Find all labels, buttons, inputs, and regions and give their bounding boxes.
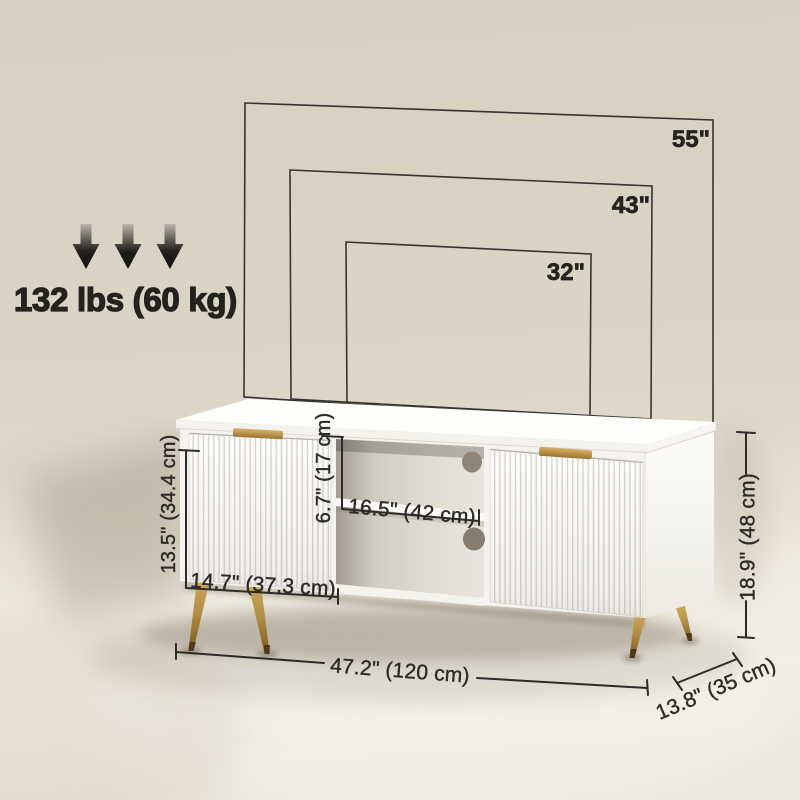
right-door [490,447,643,617]
floor-shadow-core [140,607,690,661]
weight-capacity-label: 132 lbs (60 kg) [14,281,237,318]
dim-label-compartment-height: 6.7" (17 cm) [313,413,335,524]
dim-tick [647,680,648,695]
dim-label-cabinet-height: 13.5" (34.4 cm) [158,434,180,573]
dim-tick [738,637,754,638]
cable-hole [462,452,482,473]
dim-label-overall-height: 18.9" (48 cm) [737,473,760,601]
right-door-shading [490,449,643,617]
stand-floor-shadows [90,607,750,703]
product-dimension-diagram: 55" 43" 32" 132 lbs (60 kg) [0,0,800,800]
cabinet-side-panel [645,432,714,618]
leg-foot [264,645,270,654]
cable-hole [463,528,485,551]
left-door [189,428,331,591]
tv-size-label-55: 55" [672,126,710,153]
tv-size-label-43: 43" [612,192,650,219]
dim-tick [179,450,199,451]
left-door-shading [189,433,331,591]
scene: 55" 43" 32" 132 lbs (60 kg) [0,0,800,800]
tv-size-label-32: 32" [547,259,585,286]
